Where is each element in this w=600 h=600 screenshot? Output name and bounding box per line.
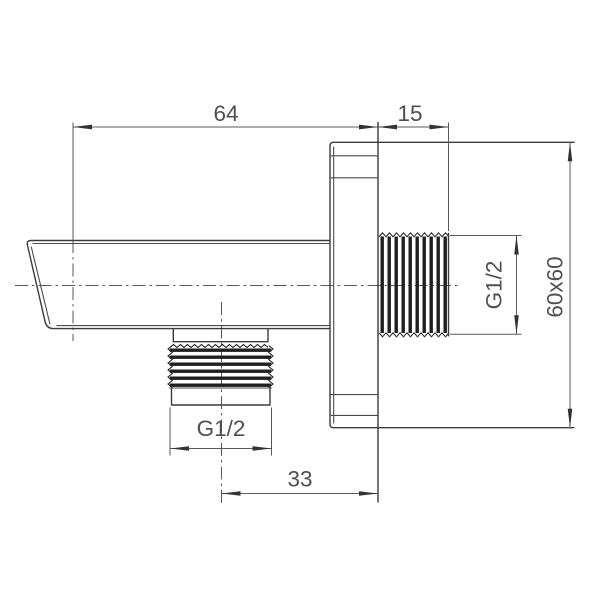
dim-64-arrow-right bbox=[359, 125, 378, 130]
dimension-g12-outlet: G1/2 bbox=[170, 408, 272, 456]
outlet-connector bbox=[168, 329, 273, 405]
outlet-thread-hatch bbox=[170, 348, 271, 388]
dim-g12-wall-label: G1/2 bbox=[482, 261, 507, 310]
drawing-canvas: 64 15 G1/2 60x60 G1/2 33 bbox=[0, 0, 600, 600]
wall-thread-crest-top bbox=[379, 233, 449, 237]
dim-60x60-arrow-up bbox=[568, 142, 573, 161]
dimension-g12-wall: G1/2 bbox=[450, 236, 522, 335]
dim-g12-outlet-label: G1/2 bbox=[197, 416, 246, 441]
dim-g12-wall-arrow-up bbox=[514, 236, 519, 255]
wall-thread bbox=[379, 233, 449, 337]
wall-thread-crest-bottom bbox=[379, 333, 449, 337]
outlet-collar bbox=[173, 329, 268, 342]
dim-g12-wall-arrow-down bbox=[514, 315, 519, 334]
outlet-tip bbox=[172, 388, 271, 405]
wall-thread-hatch bbox=[380, 237, 449, 334]
dim-64-label: 64 bbox=[213, 101, 238, 126]
dim-15-arrow-right bbox=[430, 125, 449, 130]
wall-plate bbox=[330, 123, 574, 503]
dimension-60x60: 60x60 bbox=[543, 142, 573, 427]
technical-drawing: 64 15 G1/2 60x60 G1/2 33 bbox=[0, 0, 600, 600]
outlet-thread-crest-top bbox=[170, 345, 268, 348]
dim-60x60-label: 60x60 bbox=[543, 256, 568, 317]
dimension-64: 64 bbox=[73, 101, 378, 240]
dim-60x60-arrow-down bbox=[568, 409, 573, 428]
dimension-33: 33 bbox=[222, 467, 379, 496]
dim-33-label: 33 bbox=[287, 467, 312, 492]
dim-15-label: 15 bbox=[397, 101, 422, 126]
dim-33-arrow-left bbox=[222, 491, 241, 496]
dim-g12-outlet-arrow-right bbox=[253, 446, 272, 451]
dim-64-arrow-left bbox=[73, 125, 92, 130]
dim-g12-outlet-arrow-left bbox=[170, 446, 189, 451]
dimension-15: 15 bbox=[378, 101, 449, 231]
dim-15-arrow-left bbox=[378, 125, 397, 130]
dim-33-arrow-right bbox=[359, 491, 378, 496]
